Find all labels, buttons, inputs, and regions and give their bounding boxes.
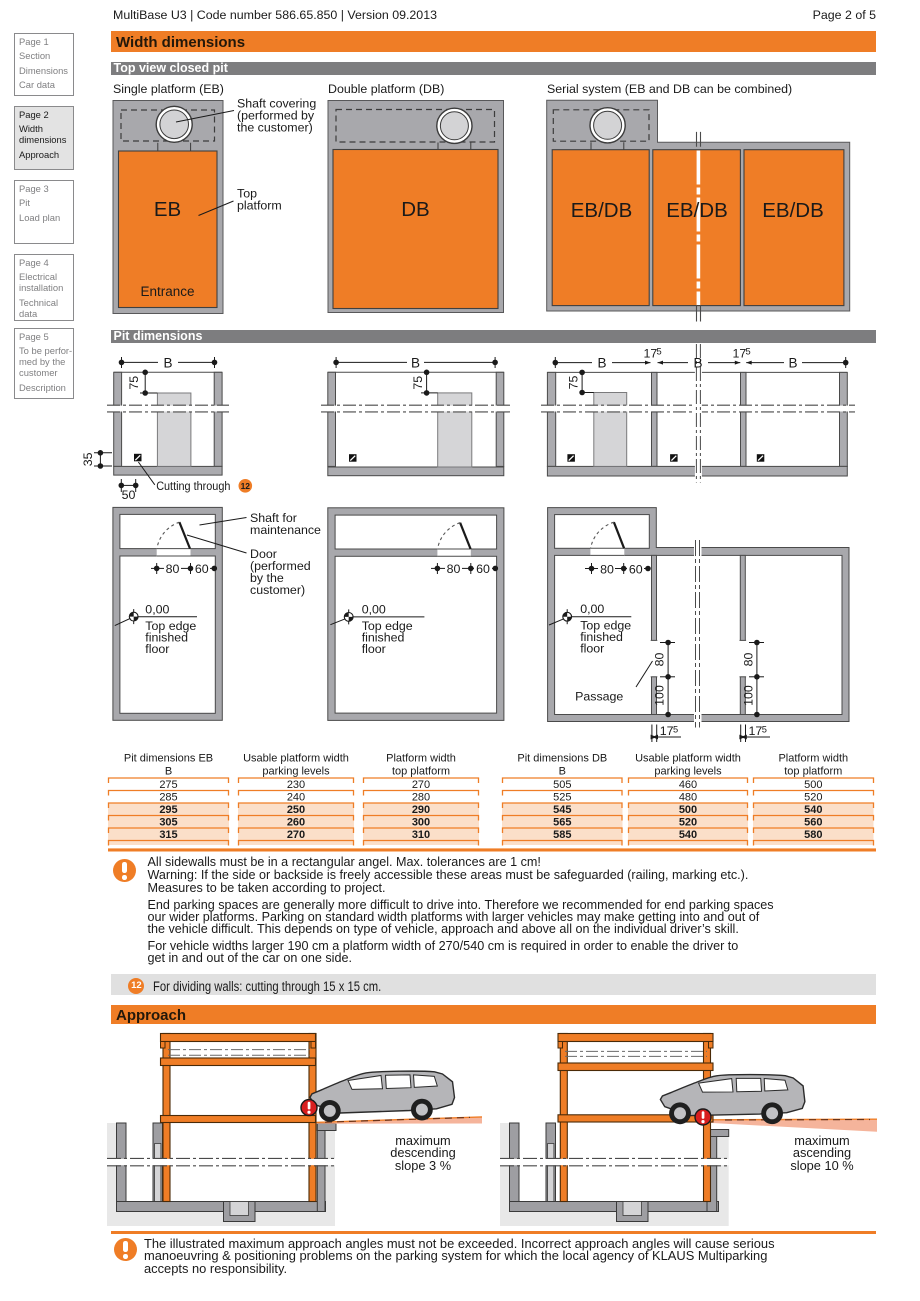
svg-text:305: 305 (159, 816, 177, 828)
svg-text:295: 295 (159, 804, 177, 816)
svg-text:565: 565 (553, 816, 571, 828)
svg-text:60: 60 (476, 562, 490, 576)
svg-text:parking levels: parking levels (262, 766, 330, 778)
svg-text:545: 545 (553, 804, 571, 816)
svg-text:17: 17 (749, 724, 763, 738)
svg-text:B: B (693, 356, 702, 371)
svg-text:80: 80 (741, 653, 755, 667)
svg-text:maintenance: maintenance (250, 523, 321, 537)
svg-text:EB/DB: EB/DB (571, 199, 633, 222)
svg-text:top platform: top platform (784, 766, 842, 778)
svg-text:0,00: 0,00 (580, 602, 604, 616)
svg-text:EB: EB (154, 198, 181, 221)
svg-text:50: 50 (122, 488, 136, 502)
svg-text:17: 17 (660, 724, 674, 738)
svg-text:0,00: 0,00 (362, 603, 386, 617)
svg-text:230: 230 (287, 779, 305, 791)
svg-text:Usable platform width: Usable platform width (243, 753, 349, 765)
svg-text:5: 5 (746, 347, 751, 357)
svg-text:525: 525 (553, 791, 571, 803)
svg-text:5: 5 (657, 347, 662, 357)
svg-text:500: 500 (804, 779, 822, 791)
svg-text:0,00: 0,00 (145, 602, 169, 616)
svg-text:585: 585 (553, 829, 571, 841)
svg-text:540: 540 (804, 804, 822, 816)
svg-text:17: 17 (733, 347, 747, 361)
svg-text:540: 540 (679, 829, 697, 841)
svg-text:280: 280 (412, 791, 430, 803)
svg-text:B: B (597, 356, 606, 371)
svg-text:75: 75 (567, 376, 581, 390)
svg-text:Platform width: Platform width (778, 753, 848, 765)
svg-text:platform: platform (237, 199, 282, 213)
svg-text:the customer): the customer) (237, 121, 313, 135)
svg-text:520: 520 (679, 816, 697, 828)
svg-text:275: 275 (159, 779, 177, 791)
svg-text:60: 60 (629, 562, 643, 576)
svg-text:B: B (788, 356, 797, 371)
svg-text:Platform width: Platform width (386, 753, 456, 765)
svg-text:EB/DB: EB/DB (666, 199, 728, 222)
svg-text:460: 460 (679, 779, 697, 791)
svg-text:Pit dimensions DB: Pit dimensions DB (517, 753, 607, 765)
svg-text:75: 75 (411, 376, 425, 390)
svg-text:customer): customer) (250, 583, 305, 597)
svg-text:B: B (163, 356, 172, 371)
svg-text:17: 17 (644, 347, 658, 361)
svg-text:270: 270 (412, 779, 430, 791)
svg-text:floor: floor (362, 642, 386, 656)
svg-text:35: 35 (81, 452, 95, 466)
svg-text:80: 80 (653, 653, 667, 667)
svg-text:top platform: top platform (392, 766, 450, 778)
svg-text:parking levels: parking levels (654, 766, 722, 778)
svg-text:505: 505 (553, 779, 571, 791)
svg-text:300: 300 (412, 816, 430, 828)
svg-text:240: 240 (287, 791, 305, 803)
svg-text:310: 310 (412, 829, 430, 841)
svg-text:480: 480 (679, 791, 697, 803)
svg-text:285: 285 (159, 791, 177, 803)
svg-text:260: 260 (287, 816, 305, 828)
svg-text:B: B (559, 766, 566, 778)
svg-text:Passage: Passage (575, 689, 623, 703)
svg-text:100: 100 (653, 685, 667, 706)
svg-text:DB: DB (401, 198, 429, 221)
svg-text:80: 80 (447, 562, 461, 576)
svg-text:80: 80 (166, 562, 180, 576)
svg-text:B: B (165, 766, 172, 778)
svg-text:EB/DB: EB/DB (762, 199, 824, 222)
svg-text:520: 520 (804, 791, 822, 803)
svg-text:250: 250 (287, 804, 305, 816)
svg-text:5: 5 (762, 724, 767, 734)
svg-text:5: 5 (673, 724, 678, 734)
svg-text:315: 315 (159, 829, 177, 841)
svg-text:floor: floor (580, 642, 604, 656)
svg-text:Entrance: Entrance (140, 284, 194, 299)
svg-text:500: 500 (679, 804, 697, 816)
svg-text:60: 60 (195, 562, 209, 576)
svg-text:B: B (411, 356, 420, 371)
svg-text:560: 560 (804, 816, 822, 828)
svg-text:580: 580 (804, 829, 822, 841)
svg-text:Pit dimensions EB: Pit dimensions EB (124, 753, 213, 765)
svg-text:floor: floor (145, 642, 169, 656)
svg-text:80: 80 (600, 562, 614, 576)
svg-text:290: 290 (412, 804, 430, 816)
svg-text:12: 12 (241, 481, 251, 491)
svg-text:Cutting through: Cutting through (156, 479, 230, 493)
svg-text:Usable platform width: Usable platform width (635, 753, 741, 765)
svg-text:270: 270 (287, 829, 305, 841)
svg-text:100: 100 (741, 685, 755, 706)
svg-text:75: 75 (127, 376, 141, 390)
